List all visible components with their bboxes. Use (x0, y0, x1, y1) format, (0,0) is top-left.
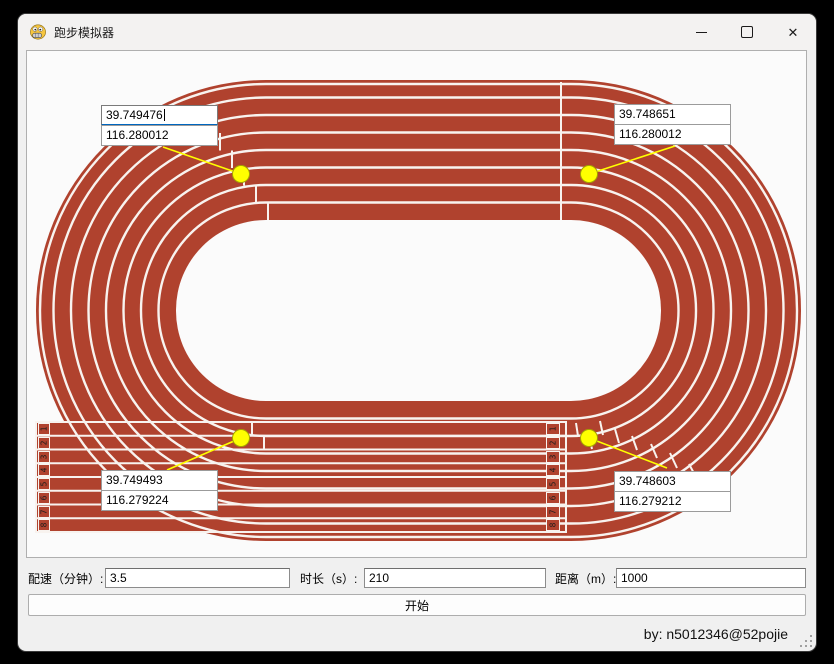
text-caret (164, 109, 165, 121)
marker-box-top-right: 39.748651 116.280012 (614, 104, 731, 145)
lane-number-left-1: 1 (38, 423, 50, 435)
lane-number-left-8: 8 (38, 519, 50, 531)
lane-number-left-5: 5 (38, 478, 50, 490)
start-button[interactable]: 开始 (28, 594, 806, 616)
lane-number-left-6: 6 (38, 492, 50, 504)
screenshot-root: { "titlebar": { "title": "跑步模拟器", "close… (0, 0, 834, 664)
lane-number-left-3: 3 (38, 451, 50, 463)
pace-input[interactable] (105, 568, 290, 588)
runner-dot-top-left (233, 166, 250, 183)
distance-input[interactable] (616, 568, 806, 588)
duration-label: 时长（s）: (300, 570, 357, 589)
lane-number-left-4: 4 (38, 464, 50, 476)
close-icon: ✕ (788, 26, 799, 39)
lane-number-right-3: 3 (546, 451, 560, 463)
app-window: 跑步模拟器 ✕ (18, 14, 816, 651)
maximize-icon (741, 26, 753, 38)
marker-box-bottom-left: 39.749493 116.279224 (101, 470, 218, 511)
lane-number-left-7: 7 (38, 506, 50, 518)
distance-label: 距离（m）: (555, 570, 616, 589)
coord-entry-lng[interactable]: 116.280012 (614, 124, 731, 145)
lane-number-right-6: 6 (546, 492, 560, 504)
runner-dot-bottom-left (233, 430, 250, 447)
runner-dot-top-right (581, 166, 598, 183)
coord-entry-lat[interactable]: 39.749493 (101, 470, 218, 491)
close-button[interactable]: ✕ (770, 14, 816, 50)
titlebar: 跑步模拟器 ✕ (18, 14, 816, 50)
app-icon (30, 24, 46, 40)
track-infield (176, 220, 661, 401)
window-title: 跑步模拟器 (54, 24, 114, 41)
lane-number-right-4: 4 (546, 464, 560, 476)
maximize-button[interactable] (724, 14, 770, 50)
lane-number-right-1: 1 (546, 423, 560, 435)
marker-box-bottom-right: 39.748603 116.279212 (614, 471, 731, 512)
duration-input[interactable] (364, 568, 546, 588)
credit-text: by: n5012346@52pojie (644, 626, 788, 642)
lane-number-right-8: 8 (546, 519, 560, 531)
pace-label: 配速（分钟）: (28, 570, 103, 589)
lane-number-right-2: 2 (546, 437, 560, 449)
lane-number-right-5: 5 (546, 478, 560, 490)
lane-number-right-7: 7 (546, 506, 560, 518)
coord-entry-lat[interactable]: 39.749476 (101, 105, 218, 126)
marker-box-top-left: 39.749476 116.280012 (101, 105, 218, 146)
minimize-button[interactable] (678, 14, 724, 50)
coord-entry-lat[interactable]: 39.748651 (614, 104, 731, 125)
coord-entry-lat[interactable]: 39.748603 (614, 471, 731, 492)
lane-number-left-2: 2 (38, 437, 50, 449)
coord-entry-lng[interactable]: 116.279224 (101, 490, 218, 511)
runner-dot-bottom-right (581, 430, 598, 447)
minimize-icon (696, 32, 707, 33)
track-canvas: 12345678 12345678 39.749476 116.280012 3… (26, 50, 807, 558)
coord-entry-lng[interactable]: 116.280012 (101, 125, 218, 146)
resize-grip-icon[interactable] (798, 633, 812, 647)
coord-entry-lng[interactable]: 116.279212 (614, 491, 731, 512)
